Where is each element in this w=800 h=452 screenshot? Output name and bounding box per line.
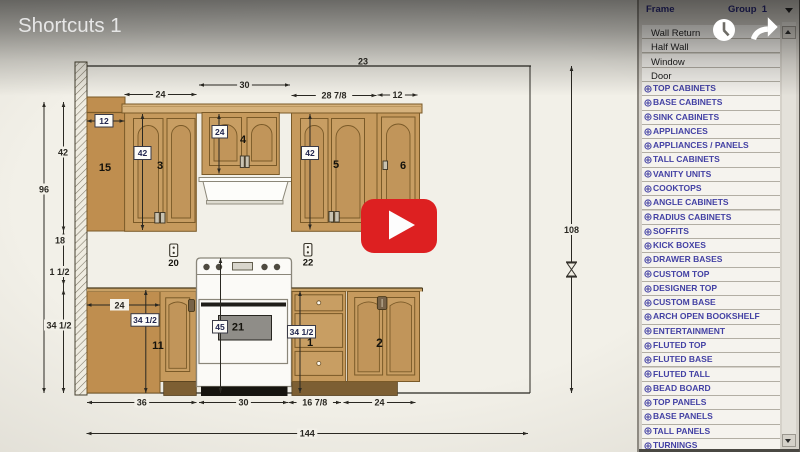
svg-text:16 7/8: 16 7/8	[302, 398, 327, 408]
svg-text:22: 22	[303, 258, 314, 269]
svg-text:24: 24	[114, 301, 124, 311]
svg-text:42: 42	[138, 148, 148, 158]
svg-text:34 1/2: 34 1/2	[133, 315, 157, 325]
svg-text:1: 1	[307, 337, 313, 349]
svg-text:11: 11	[152, 340, 164, 352]
svg-text:1 1/2: 1 1/2	[49, 267, 69, 277]
svg-text:20: 20	[168, 258, 179, 269]
svg-text:24: 24	[215, 127, 225, 137]
svg-text:18: 18	[55, 236, 65, 246]
svg-text:3: 3	[157, 160, 163, 172]
svg-text:4: 4	[240, 134, 247, 146]
svg-text:6: 6	[400, 160, 406, 172]
svg-text:34 1/2: 34 1/2	[46, 321, 71, 331]
svg-text:2: 2	[376, 336, 383, 350]
svg-text:45: 45	[215, 322, 225, 332]
svg-text:15: 15	[99, 162, 111, 174]
svg-text:108: 108	[564, 225, 579, 235]
svg-text:21: 21	[232, 322, 244, 334]
svg-text:30: 30	[238, 398, 248, 408]
svg-text:144: 144	[300, 429, 315, 439]
svg-text:36: 36	[137, 398, 147, 408]
svg-text:42: 42	[58, 148, 68, 158]
svg-text:34 1/2: 34 1/2	[290, 327, 314, 337]
svg-text:24: 24	[374, 398, 384, 408]
svg-text:42: 42	[305, 148, 315, 158]
svg-text:5: 5	[333, 159, 339, 171]
svg-text:12: 12	[99, 116, 109, 126]
svg-text:96: 96	[39, 185, 49, 195]
